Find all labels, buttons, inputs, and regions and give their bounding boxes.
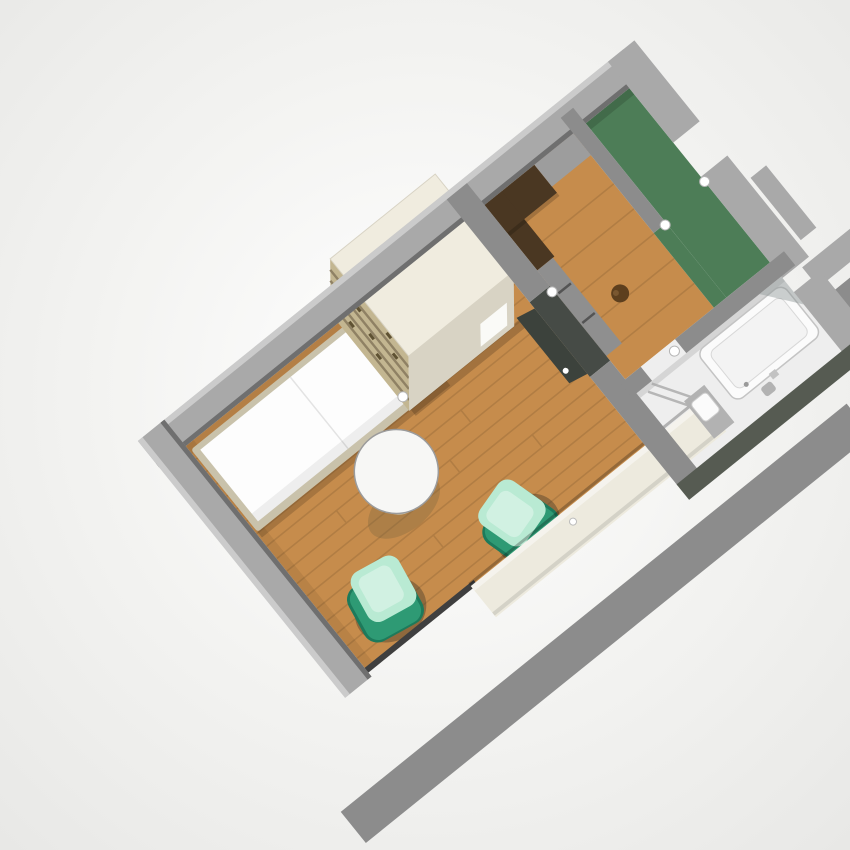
apartment bbox=[66, 0, 850, 843]
render-canvas bbox=[0, 0, 850, 850]
floorplan-3d-render bbox=[0, 0, 850, 850]
